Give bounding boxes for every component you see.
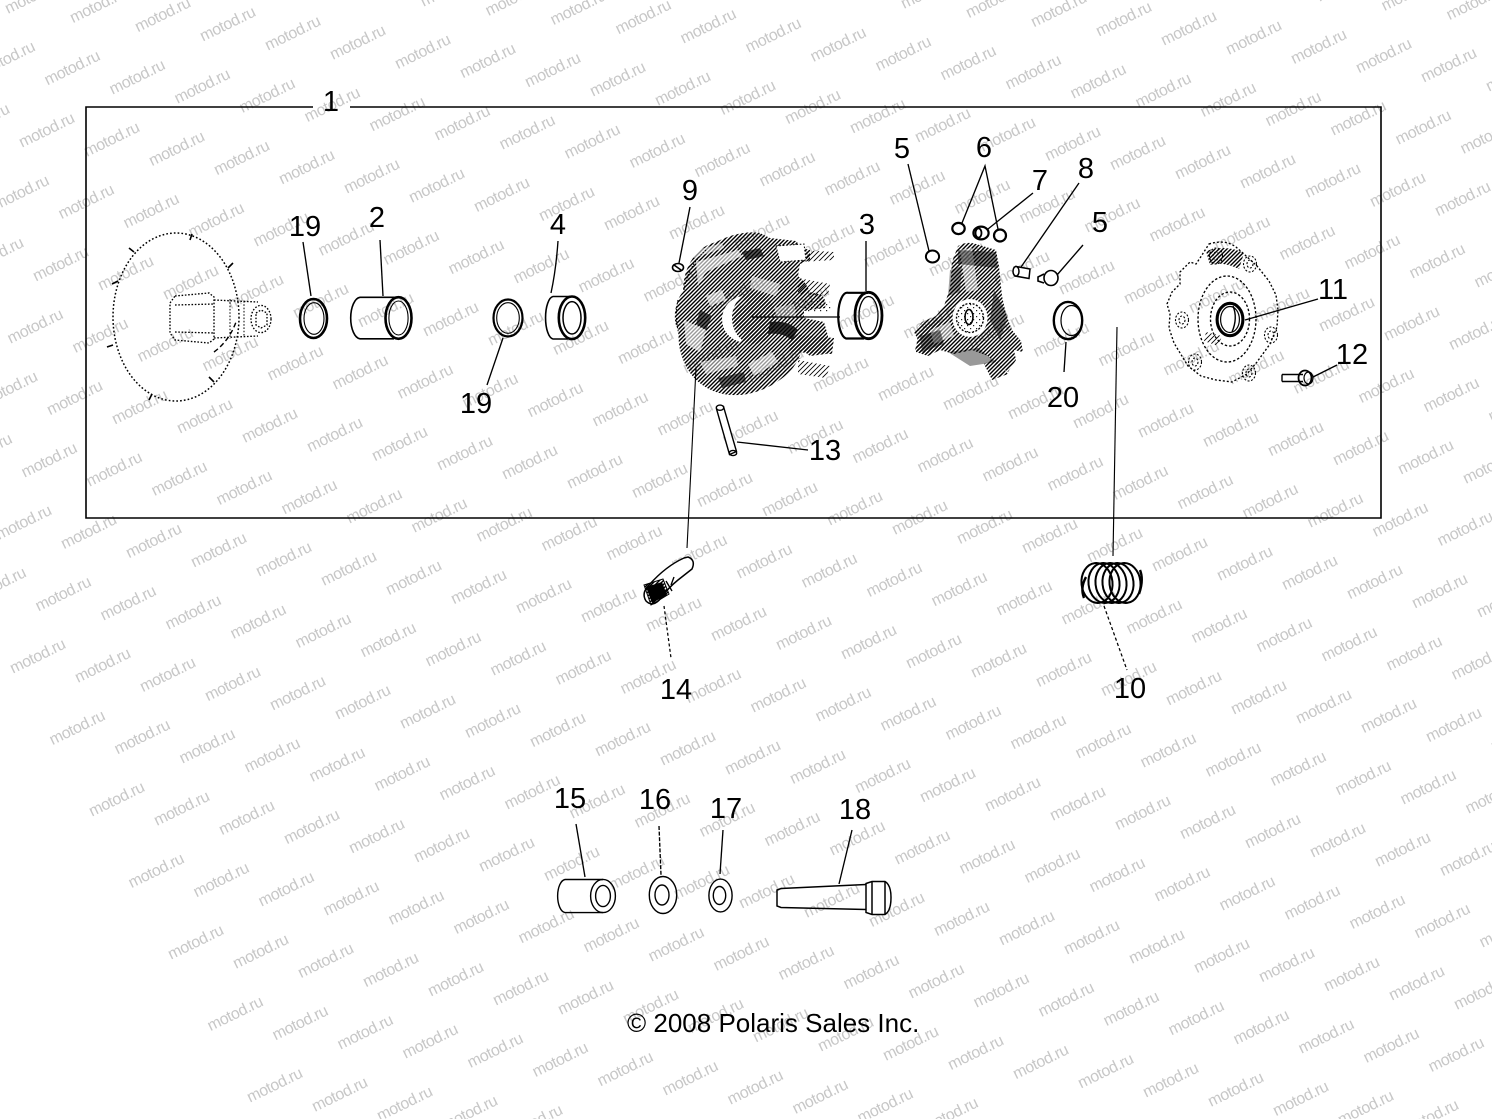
svg-text:motod.ru: motod.ru bbox=[72, 645, 133, 686]
svg-text:motod.ru: motod.ru bbox=[646, 924, 707, 965]
svg-text:motod.ru: motod.ru bbox=[126, 851, 187, 892]
svg-text:18: 18 bbox=[839, 794, 871, 826]
svg-text:motod.ru: motod.ru bbox=[457, 41, 518, 82]
svg-text:motod.ru: motod.ru bbox=[0, 431, 15, 472]
svg-text:motod.ru: motod.ru bbox=[1423, 705, 1484, 746]
svg-text:motod.ru: motod.ru bbox=[174, 396, 235, 437]
svg-text:motod.ru: motod.ru bbox=[1474, 580, 1492, 621]
svg-text:motod.ru: motod.ru bbox=[1022, 846, 1083, 887]
svg-text:motod.ru: motod.ru bbox=[42, 48, 103, 89]
svg-text:motod.ru: motod.ru bbox=[892, 827, 953, 868]
svg-text:motod.ru: motod.ru bbox=[295, 940, 356, 981]
svg-text:motod.ru: motod.ru bbox=[875, 363, 936, 404]
svg-text:motod.ru: motod.ru bbox=[604, 523, 665, 564]
svg-text:motod.ru: motod.ru bbox=[917, 765, 978, 806]
svg-text:motod.ru: motod.ru bbox=[912, 105, 973, 146]
svg-text:motod.ru: motod.ru bbox=[1302, 160, 1363, 201]
svg-text:motod.ru: motod.ru bbox=[952, 177, 1013, 218]
svg-text:motod.ru: motod.ru bbox=[1198, 80, 1259, 121]
svg-text:motod.ru: motod.ru bbox=[1217, 873, 1278, 914]
svg-text:motod.ru: motod.ru bbox=[381, 228, 442, 269]
svg-text:14: 14 bbox=[660, 674, 692, 706]
svg-text:10: 10 bbox=[1114, 673, 1146, 705]
svg-text:motod.ru: motod.ru bbox=[1409, 571, 1470, 612]
svg-text:motod.ru: motod.ru bbox=[346, 816, 407, 857]
svg-text:motod.ru: motod.ru bbox=[1398, 767, 1459, 808]
svg-text:motod.ru: motod.ru bbox=[165, 922, 226, 963]
svg-text:motod.ru: motod.ru bbox=[1393, 107, 1454, 148]
svg-text:motod.ru: motod.ru bbox=[341, 156, 402, 197]
svg-text:19: 19 bbox=[460, 388, 492, 420]
svg-text:motod.ru: motod.ru bbox=[1008, 712, 1069, 753]
svg-text:7: 7 bbox=[1032, 165, 1048, 197]
svg-text:motod.ru: motod.ru bbox=[748, 675, 809, 716]
svg-text:motod.ru: motod.ru bbox=[581, 915, 642, 956]
svg-text:motod.ru: motod.ru bbox=[395, 361, 456, 402]
svg-text:motod.ru: motod.ru bbox=[1172, 142, 1233, 183]
svg-text:motod.ru: motod.ru bbox=[852, 756, 913, 797]
svg-text:motod.ru: motod.ru bbox=[1277, 223, 1338, 264]
svg-text:motod.ru: motod.ru bbox=[1166, 998, 1227, 1039]
svg-text:motod.ru: motod.ru bbox=[44, 378, 105, 419]
svg-text:motod.ru: motod.ru bbox=[67, 0, 128, 27]
svg-text:motod.ru: motod.ru bbox=[776, 943, 837, 984]
svg-text:motod.ru: motod.ru bbox=[1344, 562, 1405, 603]
svg-text:motod.ru: motod.ru bbox=[188, 530, 249, 571]
svg-text:motod.ru: motod.ru bbox=[237, 75, 298, 116]
svg-text:motod.ru: motod.ru bbox=[1268, 749, 1329, 790]
svg-text:motod.ru: motod.ru bbox=[98, 583, 159, 624]
svg-text:motod.ru: motod.ru bbox=[655, 398, 716, 439]
svg-text:motod.ru: motod.ru bbox=[432, 103, 493, 144]
svg-text:motod.ru: motod.ru bbox=[0, 101, 12, 142]
svg-text:motod.ru: motod.ru bbox=[497, 112, 558, 153]
svg-text:motod.ru: motod.ru bbox=[81, 119, 142, 160]
svg-text:motod.ru: motod.ru bbox=[0, 297, 1, 338]
svg-text:motod.ru: motod.ru bbox=[847, 96, 908, 137]
svg-text:motod.ru: motod.ru bbox=[1305, 490, 1366, 531]
svg-text:motod.ru: motod.ru bbox=[1028, 0, 1089, 31]
svg-text:© 2008 Polaris Sales Inc.: © 2008 Polaris Sales Inc. bbox=[627, 1008, 919, 1038]
svg-text:motod.ru: motod.ru bbox=[1477, 910, 1492, 951]
svg-text:motod.ru: motod.ru bbox=[708, 603, 769, 644]
svg-text:motod.ru: motod.ru bbox=[1342, 232, 1403, 273]
svg-text:motod.ru: motod.ru bbox=[1087, 855, 1148, 896]
svg-text:motod.ru: motod.ru bbox=[216, 797, 277, 838]
svg-text:motod.ru: motod.ru bbox=[400, 1021, 461, 1062]
svg-text:motod.ru: motod.ru bbox=[1073, 721, 1134, 762]
svg-text:motod.ru: motod.ru bbox=[123, 521, 184, 562]
svg-text:motod.ru: motod.ru bbox=[994, 578, 1055, 619]
svg-text:motod.ru: motod.ru bbox=[397, 691, 458, 732]
svg-text:20: 20 bbox=[1047, 382, 1079, 414]
svg-text:motod.ru: motod.ru bbox=[499, 442, 560, 483]
svg-text:motod.ru: motod.ru bbox=[915, 435, 976, 476]
svg-text:motod.ru: motod.ru bbox=[211, 138, 272, 179]
svg-text:motod.ru: motod.ru bbox=[267, 673, 328, 714]
svg-text:motod.ru: motod.ru bbox=[321, 878, 382, 919]
svg-text:motod.ru: motod.ru bbox=[253, 539, 314, 580]
svg-text:motod.ru: motod.ru bbox=[1010, 1042, 1071, 1083]
svg-text:motod.ru: motod.ru bbox=[971, 970, 1032, 1011]
svg-text:motod.ru: motod.ru bbox=[344, 486, 405, 527]
svg-text:motod.ru: motod.ru bbox=[541, 843, 602, 884]
svg-text:motod.ru: motod.ru bbox=[1437, 838, 1492, 879]
svg-text:motod.ru: motod.ru bbox=[1426, 1035, 1487, 1076]
svg-text:motod.ru: motod.ru bbox=[1226, 347, 1287, 388]
svg-text:motod.ru: motod.ru bbox=[202, 664, 263, 705]
svg-text:motod.ru: motod.ru bbox=[191, 860, 252, 901]
svg-text:motod.ru: motod.ru bbox=[149, 458, 210, 499]
svg-text:motod.ru: motod.ru bbox=[2, 0, 63, 18]
svg-text:motod.ru: motod.ru bbox=[307, 744, 368, 785]
svg-text:motod.ru: motod.ru bbox=[1149, 534, 1210, 575]
svg-text:motod.ru: motod.ru bbox=[1203, 739, 1264, 780]
svg-text:motod.ru: motod.ru bbox=[1418, 45, 1479, 86]
svg-text:motod.ru: motod.ru bbox=[262, 13, 323, 54]
svg-text:motod.ru: motod.ru bbox=[963, 0, 1024, 22]
svg-text:motod.ru: motod.ru bbox=[1321, 954, 1382, 995]
svg-text:motod.ru: motod.ru bbox=[1135, 400, 1196, 441]
svg-text:motod.ru: motod.ru bbox=[1472, 250, 1492, 291]
svg-text:motod.ru: motod.ru bbox=[121, 191, 182, 232]
svg-text:motod.ru: motod.ru bbox=[411, 825, 472, 866]
svg-text:motod.ru: motod.ru bbox=[84, 449, 145, 490]
svg-text:motod.ru: motod.ru bbox=[527, 710, 588, 751]
svg-text:4: 4 bbox=[550, 209, 566, 241]
svg-text:motod.ru: motod.ru bbox=[177, 726, 238, 767]
svg-text:motod.ru: motod.ru bbox=[1070, 391, 1131, 432]
svg-text:motod.ru: motod.ru bbox=[606, 853, 667, 894]
svg-text:motod.ru: motod.ru bbox=[722, 737, 783, 778]
svg-text:motod.ru: motod.ru bbox=[200, 334, 261, 375]
svg-text:motod.ru: motod.ru bbox=[1003, 52, 1064, 93]
svg-text:17: 17 bbox=[710, 793, 742, 825]
svg-text:motod.ru: motod.ru bbox=[488, 638, 549, 679]
svg-text:motod.ru: motod.ru bbox=[33, 574, 94, 615]
svg-text:motod.ru: motod.ru bbox=[1386, 963, 1447, 1004]
svg-text:motod.ru: motod.ru bbox=[476, 834, 537, 875]
svg-text:motod.ru: motod.ru bbox=[386, 887, 447, 928]
svg-text:motod.ru: motod.ru bbox=[270, 1003, 331, 1044]
svg-text:motod.ru: motod.ru bbox=[1200, 409, 1261, 450]
svg-text:motod.ru: motod.ru bbox=[172, 66, 233, 107]
svg-text:motod.ru: motod.ru bbox=[1228, 677, 1289, 718]
svg-text:motod.ru: motod.ru bbox=[1263, 89, 1324, 130]
svg-text:motod.ru: motod.ru bbox=[95, 253, 156, 294]
svg-text:motod.ru: motod.ru bbox=[0, 565, 29, 606]
svg-text:motod.ru: motod.ru bbox=[601, 193, 662, 234]
svg-text:motod.ru: motod.ru bbox=[474, 504, 535, 545]
svg-text:motod.ru: motod.ru bbox=[1214, 543, 1275, 584]
svg-text:motod.ru: motod.ru bbox=[1256, 945, 1317, 986]
svg-text:motod.ru: motod.ru bbox=[562, 121, 623, 162]
svg-text:motod.ru: motod.ru bbox=[163, 592, 224, 633]
svg-text:motod.ru: motod.ru bbox=[1449, 642, 1492, 683]
svg-text:motod.ru: motod.ru bbox=[304, 414, 365, 455]
svg-text:motod.ru: motod.ru bbox=[757, 149, 818, 190]
svg-text:motod.ru: motod.ru bbox=[1314, 0, 1375, 5]
svg-text:motod.ru: motod.ru bbox=[555, 977, 616, 1018]
svg-text:motod.ru: motod.ru bbox=[1463, 776, 1492, 817]
svg-text:motod.ru: motod.ru bbox=[434, 433, 495, 474]
svg-text:motod.ru: motod.ru bbox=[244, 1065, 305, 1106]
svg-text:motod.ru: motod.ru bbox=[358, 620, 419, 661]
svg-text:motod.ru: motod.ru bbox=[437, 763, 498, 804]
svg-text:motod.ru: motod.ru bbox=[420, 299, 481, 340]
svg-text:motod.ru: motod.ru bbox=[1330, 428, 1391, 469]
svg-text:motod.ru: motod.ru bbox=[448, 567, 509, 608]
svg-text:motod.ru: motod.ru bbox=[1432, 179, 1492, 220]
svg-text:motod.ru: motod.ru bbox=[980, 444, 1041, 485]
svg-text:motod.ru: motod.ru bbox=[1370, 499, 1431, 540]
svg-text:motod.ru: motod.ru bbox=[1367, 169, 1428, 210]
svg-text:motod.ru: motod.ru bbox=[1084, 525, 1145, 566]
svg-text:motod.ru: motod.ru bbox=[0, 39, 38, 80]
svg-text:motod.ru: motod.ru bbox=[383, 557, 444, 598]
svg-text:motod.ru: motod.ru bbox=[1138, 730, 1199, 771]
svg-text:motod.ru: motod.ru bbox=[1458, 116, 1492, 157]
svg-text:motod.ru: motod.ru bbox=[471, 174, 532, 215]
svg-text:motod.ru: motod.ru bbox=[309, 1074, 370, 1115]
svg-text:motod.ru: motod.ru bbox=[678, 6, 739, 47]
svg-text:motod.ru: motod.ru bbox=[590, 389, 651, 430]
svg-text:motod.ru: motod.ru bbox=[1110, 463, 1171, 504]
svg-text:motod.ru: motod.ru bbox=[1251, 285, 1312, 326]
svg-text:motod.ru: motod.ru bbox=[465, 1030, 526, 1071]
svg-text:motod.ru: motod.ru bbox=[824, 488, 885, 529]
svg-text:motod.ru: motod.ru bbox=[906, 961, 967, 1002]
svg-text:motod.ru: motod.ru bbox=[1293, 686, 1354, 727]
svg-text:motod.ru: motod.ru bbox=[109, 387, 170, 428]
svg-text:motod.ru: motod.ru bbox=[1152, 864, 1213, 905]
svg-text:motod.ru: motod.ru bbox=[1036, 979, 1097, 1020]
svg-text:motod.ru: motod.ru bbox=[242, 735, 303, 776]
svg-text:motod.ru: motod.ru bbox=[855, 1086, 916, 1119]
svg-text:motod.ru: motod.ru bbox=[790, 1076, 851, 1117]
svg-text:motod.ru: motod.ru bbox=[1353, 36, 1414, 77]
svg-text:motod.ru: motod.ru bbox=[360, 950, 421, 991]
svg-text:motod.ru: motod.ru bbox=[1096, 329, 1157, 370]
svg-text:motod.ru: motod.ru bbox=[230, 931, 291, 972]
svg-text:motod.ru: motod.ru bbox=[276, 147, 337, 188]
svg-text:motod.ru: motod.ru bbox=[1288, 26, 1349, 67]
svg-text:motod.ru: motod.ru bbox=[799, 550, 860, 591]
svg-text:8: 8 bbox=[1078, 153, 1094, 185]
svg-text:motod.ru: motod.ru bbox=[595, 1049, 656, 1090]
svg-text:9: 9 bbox=[682, 175, 698, 207]
svg-text:motod.ru: motod.ru bbox=[1047, 783, 1108, 824]
svg-text:motod.ru: motod.ru bbox=[1112, 792, 1173, 833]
svg-text:motod.ru: motod.ru bbox=[1101, 989, 1162, 1030]
svg-text:motod.ru: motod.ru bbox=[1175, 472, 1236, 513]
svg-text:motod.ru: motod.ru bbox=[1460, 446, 1492, 487]
svg-text:motod.ru: motod.ru bbox=[1147, 204, 1208, 245]
svg-text:motod.ru: motod.ru bbox=[197, 4, 258, 45]
svg-text:5: 5 bbox=[894, 133, 910, 165]
svg-text:motod.ru: motod.ru bbox=[808, 24, 869, 65]
svg-text:motod.ru: motod.ru bbox=[982, 774, 1043, 815]
svg-text:motod.ru: motod.ru bbox=[137, 654, 198, 695]
svg-text:motod.ru: motod.ru bbox=[1400, 1097, 1461, 1119]
svg-text:motod.ru: motod.ru bbox=[439, 1093, 500, 1119]
svg-text:motod.ru: motod.ru bbox=[112, 717, 173, 758]
svg-text:motod.ru: motod.ru bbox=[762, 809, 823, 850]
svg-text:motod.ru: motod.ru bbox=[1358, 695, 1419, 736]
svg-text:15: 15 bbox=[554, 783, 586, 815]
svg-text:motod.ru: motod.ru bbox=[1133, 70, 1194, 111]
svg-text:motod.ru: motod.ru bbox=[1205, 1069, 1266, 1110]
svg-text:19: 19 bbox=[289, 211, 321, 243]
svg-text:motod.ru: motod.ru bbox=[1451, 972, 1492, 1013]
svg-text:motod.ru: motod.ru bbox=[938, 43, 999, 84]
svg-text:motod.ru: motod.ru bbox=[954, 506, 1015, 547]
svg-text:motod.ru: motod.ru bbox=[1333, 758, 1394, 799]
svg-text:motod.ru: motod.ru bbox=[135, 325, 196, 366]
svg-text:motod.ru: motod.ru bbox=[293, 611, 354, 652]
svg-text:motod.ru: motod.ru bbox=[813, 684, 874, 725]
svg-text:motod.ru: motod.ru bbox=[462, 700, 523, 741]
svg-text:motod.ru: motod.ru bbox=[1161, 338, 1222, 379]
svg-text:motod.ru: motod.ru bbox=[734, 541, 795, 582]
svg-text:motod.ru: motod.ru bbox=[1237, 151, 1298, 192]
svg-text:motod.ru: motod.ru bbox=[1068, 61, 1129, 102]
svg-text:motod.ru: motod.ru bbox=[671, 862, 732, 903]
svg-text:13: 13 bbox=[809, 435, 841, 467]
svg-text:motod.ru: motod.ru bbox=[1107, 133, 1168, 174]
svg-text:motod.ru: motod.ru bbox=[525, 380, 586, 421]
svg-text:motod.ru: motod.ru bbox=[205, 994, 266, 1035]
svg-text:motod.ru: motod.ru bbox=[736, 871, 797, 912]
svg-text:motod.ru: motod.ru bbox=[1483, 54, 1492, 95]
svg-text:motod.ru: motod.ru bbox=[931, 899, 992, 940]
svg-text:motod.ru: motod.ru bbox=[228, 601, 289, 642]
svg-text:motod.ru: motod.ru bbox=[945, 1032, 1006, 1073]
svg-text:motod.ru: motod.ru bbox=[822, 158, 883, 199]
svg-text:motod.ru: motod.ru bbox=[878, 693, 939, 734]
svg-text:motod.ru: motod.ru bbox=[186, 200, 247, 241]
svg-text:motod.ru: motod.ru bbox=[369, 424, 430, 465]
svg-text:motod.ru: motod.ru bbox=[1177, 802, 1238, 843]
svg-text:motod.ru: motod.ru bbox=[406, 165, 467, 206]
svg-text:motod.ru: motod.ru bbox=[418, 0, 479, 10]
svg-text:motod.ru: motod.ru bbox=[968, 640, 1029, 681]
svg-text:motod.ru: motod.ru bbox=[627, 131, 688, 172]
svg-text:motod.ru: motod.ru bbox=[666, 202, 727, 243]
svg-text:motod.ru: motod.ru bbox=[864, 560, 925, 601]
svg-text:16: 16 bbox=[639, 784, 671, 816]
svg-text:motod.ru: motod.ru bbox=[409, 495, 470, 536]
svg-text:motod.ru: motod.ru bbox=[850, 426, 911, 467]
svg-text:motod.ru: motod.ru bbox=[372, 754, 433, 795]
svg-text:motod.ru: motod.ru bbox=[652, 68, 713, 109]
svg-text:motod.ru: motod.ru bbox=[1093, 0, 1154, 40]
svg-text:motod.ru: motod.ru bbox=[0, 502, 54, 543]
svg-text:motod.ru: motod.ru bbox=[1488, 714, 1492, 755]
svg-text:motod.ru: motod.ru bbox=[943, 703, 1004, 744]
svg-text:motod.ru: motod.ru bbox=[1296, 1016, 1357, 1057]
svg-text:motod.ru: motod.ru bbox=[425, 959, 486, 1000]
svg-text:motod.ru: motod.ru bbox=[743, 15, 804, 56]
svg-text:motod.ru: motod.ru bbox=[536, 184, 597, 225]
svg-text:motod.ru: motod.ru bbox=[132, 0, 193, 36]
svg-text:6: 6 bbox=[976, 132, 992, 164]
svg-text:motod.ru: motod.ru bbox=[1163, 668, 1224, 709]
svg-text:motod.ru: motod.ru bbox=[711, 933, 772, 974]
svg-text:3: 3 bbox=[859, 209, 875, 241]
svg-text:motod.ru: motod.ru bbox=[1446, 312, 1492, 353]
svg-text:motod.ru: motod.ru bbox=[1045, 453, 1106, 494]
svg-text:motod.ru: motod.ru bbox=[374, 1083, 435, 1119]
svg-text:motod.ru: motod.ru bbox=[7, 636, 68, 677]
svg-text:motod.ru: motod.ru bbox=[353, 0, 414, 1]
svg-text:motod.ru: motod.ru bbox=[1444, 0, 1492, 24]
svg-text:2: 2 bbox=[369, 202, 385, 234]
svg-text:motod.ru: motod.ru bbox=[836, 292, 897, 333]
svg-text:motod.ru: motod.ru bbox=[1121, 266, 1182, 307]
svg-text:motod.ru: motod.ru bbox=[30, 244, 91, 285]
svg-text:motod.ru: motod.ru bbox=[522, 50, 583, 91]
svg-text:motod.ru: motod.ru bbox=[70, 315, 131, 356]
svg-text:motod.ru: motod.ru bbox=[548, 0, 609, 29]
svg-text:motod.ru: motod.ru bbox=[5, 306, 66, 347]
svg-text:motod.ru: motod.ru bbox=[1019, 516, 1080, 557]
svg-text:motod.ru: motod.ru bbox=[1189, 606, 1250, 647]
svg-text:motod.ru: motod.ru bbox=[160, 262, 221, 303]
svg-text:motod.ru: motod.ru bbox=[423, 629, 484, 670]
svg-text:motod.ru: motod.ru bbox=[47, 708, 108, 749]
svg-text:motod.ru: motod.ru bbox=[1356, 366, 1417, 407]
svg-text:motod.ru: motod.ru bbox=[504, 1102, 565, 1119]
svg-text:motod.ru: motod.ru bbox=[146, 128, 207, 169]
svg-text:motod.ru: motod.ru bbox=[1435, 509, 1492, 550]
svg-text:motod.ru: motod.ru bbox=[613, 0, 674, 38]
svg-text:motod.ru: motod.ru bbox=[657, 728, 718, 769]
svg-text:motod.ru: motod.ru bbox=[151, 788, 212, 829]
svg-text:motod.ru: motod.ru bbox=[1279, 552, 1340, 593]
svg-text:motod.ru: motod.ru bbox=[1421, 375, 1482, 416]
svg-text:motod.ru: motod.ru bbox=[16, 110, 77, 151]
svg-text:motod.ru: motod.ru bbox=[1254, 615, 1315, 656]
svg-text:motod.ru: motod.ru bbox=[392, 31, 453, 72]
svg-text:motod.ru: motod.ru bbox=[332, 682, 393, 723]
svg-text:motod.ru: motod.ru bbox=[281, 807, 342, 848]
svg-text:motod.ru: motod.ru bbox=[214, 468, 275, 509]
svg-text:motod.ru: motod.ru bbox=[279, 477, 340, 518]
svg-text:12: 12 bbox=[1336, 339, 1368, 371]
svg-text:motod.ru: motod.ru bbox=[903, 631, 964, 672]
svg-text:motod.ru: motod.ru bbox=[587, 59, 648, 100]
svg-text:motod.ru: motod.ru bbox=[592, 719, 653, 760]
svg-text:motod.ru: motod.ru bbox=[1319, 624, 1380, 665]
svg-text:motod.ru: motod.ru bbox=[1282, 882, 1343, 923]
svg-text:motod.ru: motod.ru bbox=[490, 968, 551, 1009]
svg-text:motod.ru: motod.ru bbox=[1270, 1078, 1331, 1119]
svg-text:motod.ru: motod.ru bbox=[0, 172, 52, 213]
svg-text:motod.ru: motod.ru bbox=[692, 140, 753, 181]
svg-text:motod.ru: motod.ru bbox=[335, 1012, 396, 1053]
svg-text:motod.ru: motod.ru bbox=[615, 327, 676, 368]
svg-text:motod.ru: motod.ru bbox=[929, 569, 990, 610]
svg-text:motod.ru: motod.ru bbox=[564, 451, 625, 492]
svg-text:motod.ru: motod.ru bbox=[996, 908, 1057, 949]
svg-text:motod.ru: motod.ru bbox=[1395, 437, 1456, 478]
svg-text:motod.ru: motod.ru bbox=[539, 514, 600, 555]
svg-text:motod.ru: motod.ru bbox=[0, 368, 40, 409]
svg-text:motod.ru: motod.ru bbox=[898, 0, 959, 13]
svg-text:motod.ru: motod.ru bbox=[787, 746, 848, 787]
svg-text:motod.ru: motod.ru bbox=[86, 779, 147, 820]
